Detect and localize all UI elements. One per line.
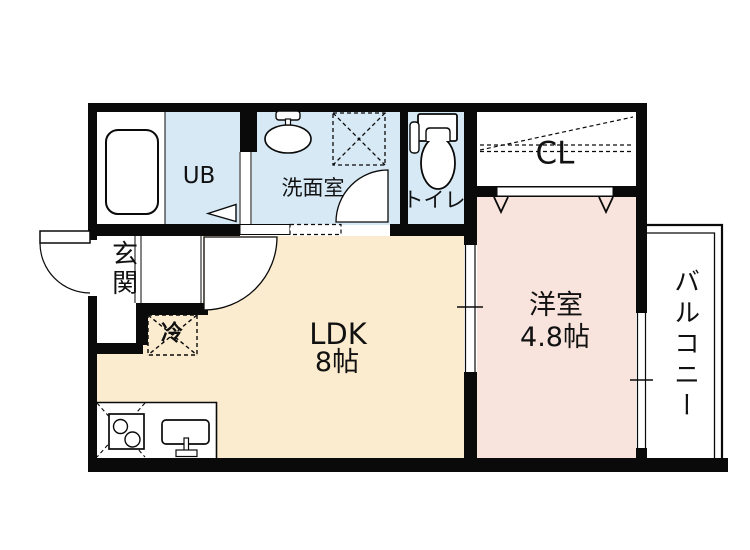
western-room-label: 洋室	[529, 292, 583, 320]
unit-bath-label: UB	[183, 164, 216, 188]
entrance-door	[40, 231, 90, 293]
balcony-label: バルコニー	[670, 268, 697, 423]
bath-door-opening	[239, 152, 252, 224]
wall-bottom	[88, 458, 728, 472]
ldk-size-label: 8帖	[315, 349, 359, 377]
western-room-size-label: 4.8帖	[520, 324, 590, 352]
wall-top	[88, 103, 647, 112]
wall-bath-washroom-stub	[240, 112, 257, 152]
wall-partition-lower	[464, 372, 477, 458]
kitchen-counter	[97, 402, 217, 458]
entrance-label: 玄関	[108, 240, 135, 298]
washroom-opening	[240, 225, 290, 235]
wall-right-upper	[636, 103, 647, 313]
wall-left-lower	[88, 296, 97, 462]
wall-under-toilet	[390, 224, 477, 236]
wall-right-stub	[636, 448, 647, 460]
entrance-floor-notch	[97, 300, 136, 345]
wall-closet-left	[464, 112, 477, 245]
floor-plan: UB 洗面室 トイレ CL 玄関 LDK 8帖 洋室 4.8帖 バルコニー 冷	[0, 0, 750, 550]
bathtub-icon	[106, 130, 158, 214]
wall-notch-bottom	[88, 343, 143, 354]
washroom-label: 洗面室	[282, 177, 345, 199]
wall-notch-right	[136, 311, 148, 345]
refrigerator-label: 冷	[161, 322, 183, 345]
wall-under-bath	[88, 224, 240, 236]
closet-label: CL	[536, 138, 575, 171]
ldk-label: LDK	[309, 319, 367, 349]
washroom-undercut-opening	[290, 225, 341, 235]
toilet-label: トイレ	[403, 189, 466, 211]
wall-left-upper	[88, 103, 97, 240]
